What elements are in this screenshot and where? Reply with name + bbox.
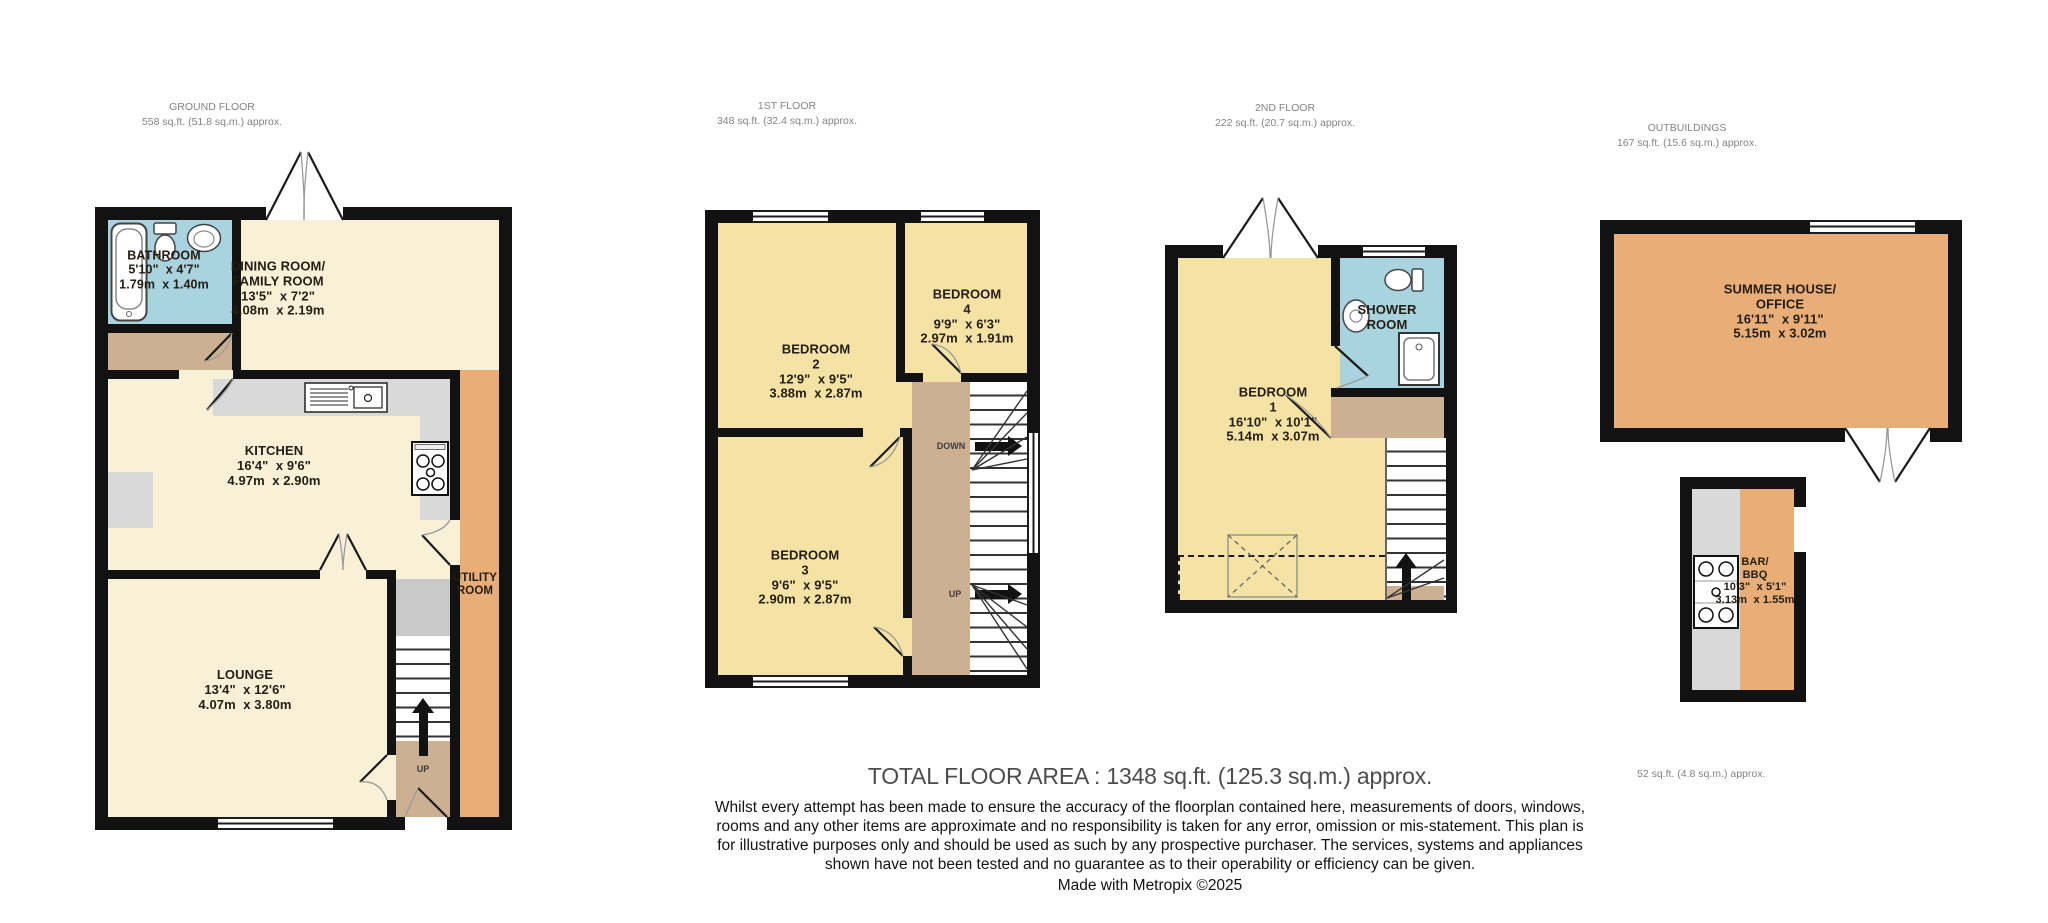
room-label-bathroom: BATHROOM 5'10" x 4'7" 1.79m x 1.40m bbox=[119, 249, 209, 292]
room-label-utility: UTILITY ROOM bbox=[453, 572, 497, 598]
floor-area: 558 sq.ft. (51.8 sq.m.) approx. bbox=[142, 115, 282, 130]
floor-header-second: 2ND FLOOR 222 sq.ft. (20.7 sq.m.) approx… bbox=[1215, 101, 1355, 131]
room-label-dining: DINING ROOM/ FAMILY ROOM 13'5" x 7'2" 4.… bbox=[231, 259, 325, 318]
floor-header-outbuildings: OUTBUILDINGS 167 sq.ft. (15.6 sq.m.) app… bbox=[1617, 121, 1757, 151]
floor-header-ground: GROUND FLOOR 558 sq.ft. (51.8 sq.m.) app… bbox=[142, 100, 282, 130]
wall bbox=[108, 324, 241, 333]
wall bbox=[900, 428, 912, 437]
footer: TOTAL FLOOR AREA : 1348 sq.ft. (125.3 sq… bbox=[710, 763, 1590, 895]
room-label-bedroom-1: BEDROOM 1 16'10" x 10'1" 5.14m x 3.07m bbox=[1226, 385, 1319, 444]
window bbox=[921, 210, 984, 223]
door-opening bbox=[266, 207, 343, 220]
hallway bbox=[108, 333, 232, 370]
wall bbox=[905, 373, 923, 382]
wall bbox=[903, 437, 912, 618]
window bbox=[753, 675, 848, 688]
stairs-up-arrow bbox=[412, 698, 434, 756]
floor-title: 2ND FLOOR bbox=[1215, 101, 1355, 116]
window bbox=[1810, 220, 1915, 234]
wall bbox=[903, 656, 912, 675]
bar-bbq-plan: BAR/ BBQ 10'3" x 5'1" 3.13m x 1.55m bbox=[1680, 477, 1806, 702]
room-label-shower: SHOWER ROOM bbox=[1357, 303, 1416, 333]
metropix-credit: Made with Metropix ©2025 bbox=[710, 877, 1590, 895]
staircase bbox=[970, 382, 1027, 675]
floor-area: 348 sq.ft. (32.4 sq.m.) approx. bbox=[717, 114, 857, 129]
floor-area: 222 sq.ft. (20.7 sq.m.) approx. bbox=[1215, 116, 1355, 131]
wall bbox=[450, 565, 460, 817]
stairs-up-arrow bbox=[975, 584, 1022, 604]
stairs-up-arrow bbox=[1395, 553, 1417, 604]
room-label-bar-bbq: BAR/ BBQ 10'3" x 5'1" 3.13m x 1.55m bbox=[1715, 556, 1794, 606]
stair-landing bbox=[396, 579, 450, 636]
disclaimer-text: Whilst every attempt has been made to en… bbox=[710, 799, 1590, 875]
first-floor-plan: DOWN UP BEDROOM 2 12'9" x 9'5" 3.88m x 2… bbox=[705, 210, 1040, 688]
floorplan-canvas: GROUND FLOOR 558 sq.ft. (51.8 sq.m.) app… bbox=[0, 0, 2048, 923]
room-label-bedroom-4: BEDROOM 4 9'9" x 6'3" 2.97m x 1.91m bbox=[920, 287, 1013, 346]
landing bbox=[912, 382, 970, 675]
total-floor-area: TOTAL FLOOR AREA : 1348 sq.ft. (125.3 sq… bbox=[710, 763, 1590, 790]
stove-icon bbox=[411, 441, 449, 496]
floor-title: 1ST FLOOR bbox=[717, 99, 857, 114]
wall bbox=[896, 223, 905, 382]
door-opening bbox=[1223, 245, 1318, 258]
wall bbox=[108, 370, 179, 379]
wall bbox=[387, 800, 396, 817]
stairs-up-label: UP bbox=[949, 589, 962, 599]
wall bbox=[233, 370, 460, 379]
floor-area: 167 sq.ft. (15.6 sq.m.) approx. bbox=[1617, 136, 1757, 151]
stairs-down-label: DOWN bbox=[937, 441, 966, 451]
landing bbox=[1331, 397, 1444, 438]
restricted-height-dashed-line bbox=[1178, 555, 1180, 600]
bar-area-note: 52 sq.ft. (4.8 sq.m.) approx. bbox=[1637, 768, 1765, 780]
floor-title: OUTBUILDINGS bbox=[1617, 121, 1757, 136]
room-label-kitchen: KITCHEN 16'4" x 9'6" 4.97m x 2.90m bbox=[227, 444, 320, 488]
window bbox=[218, 817, 333, 830]
rooflight-icon bbox=[1227, 534, 1298, 598]
wall bbox=[1331, 388, 1444, 397]
toilet-icon bbox=[1383, 266, 1425, 294]
room-label-bedroom-2: BEDROOM 2 12'9" x 9'5" 3.88m x 2.87m bbox=[769, 342, 862, 401]
wall bbox=[961, 373, 1027, 382]
room-label-summer-house: SUMMER HOUSE/ OFFICE 16'11" x 9'11" 5.15… bbox=[1724, 282, 1837, 341]
ground-floor-plan: UP BATHROOM 5'10" x 4'7" 1.79m x 1.40m D… bbox=[95, 207, 512, 830]
room-label-lounge: LOUNGE 13'4" x 12'6" 4.07m x 3.80m bbox=[198, 668, 291, 712]
window bbox=[1027, 433, 1040, 553]
door-opening bbox=[1845, 428, 1930, 442]
floor-header-first: 1ST FLOOR 348 sq.ft. (32.4 sq.m.) approx… bbox=[717, 99, 857, 129]
wall bbox=[1331, 258, 1340, 346]
room-label-bedroom-3: BEDROOM 3 9'6" x 9'5" 2.90m x 2.87m bbox=[758, 548, 851, 607]
kitchen-sink-icon bbox=[304, 382, 388, 413]
kitchen-worktop bbox=[108, 472, 153, 528]
wall bbox=[387, 579, 396, 755]
summer-house-plan: SUMMER HOUSE/ OFFICE 16'11" x 9'11" 5.15… bbox=[1600, 220, 1962, 442]
wall bbox=[366, 570, 396, 579]
shower-tray-icon bbox=[1398, 332, 1440, 386]
second-floor-plan: BEDROOM 1 16'10" x 10'1" 5.14m x 3.07m S… bbox=[1165, 245, 1457, 613]
door-opening bbox=[1794, 507, 1806, 552]
stairs-down-arrow bbox=[975, 436, 1022, 456]
stairs-up-label: UP bbox=[417, 764, 430, 774]
wall bbox=[108, 570, 320, 579]
door-opening bbox=[405, 817, 447, 830]
window bbox=[753, 210, 828, 223]
window bbox=[1363, 245, 1425, 258]
wall bbox=[718, 428, 863, 437]
floor-title: GROUND FLOOR bbox=[142, 100, 282, 115]
wall bbox=[450, 370, 460, 520]
